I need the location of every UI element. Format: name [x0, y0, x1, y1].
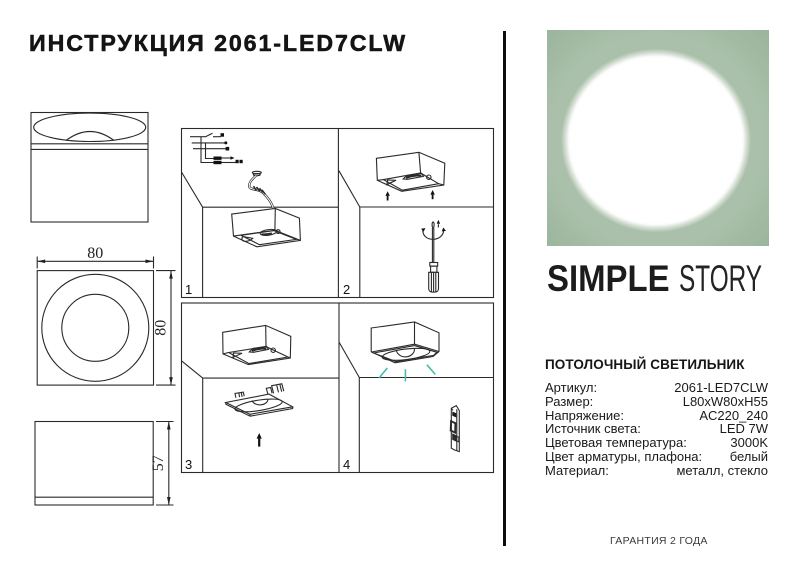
- svg-text:80: 80: [87, 245, 103, 262]
- svg-text:4: 4: [343, 457, 350, 472]
- svg-text:1: 1: [185, 282, 192, 297]
- svg-text:2: 2: [343, 282, 350, 297]
- svg-text:3: 3: [185, 457, 192, 472]
- svg-text:80: 80: [153, 320, 170, 336]
- svg-text:57: 57: [150, 455, 167, 471]
